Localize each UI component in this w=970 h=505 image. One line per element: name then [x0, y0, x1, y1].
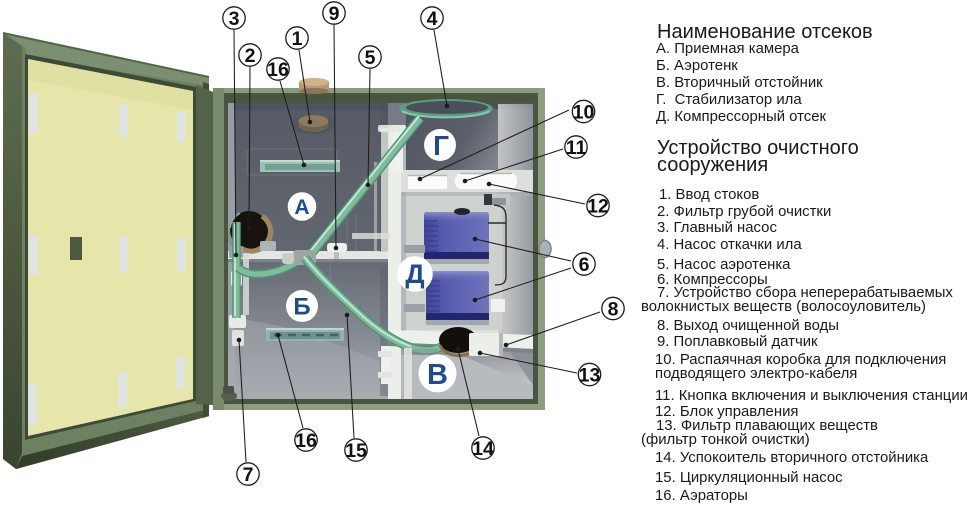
svg-text:7: 7	[243, 464, 254, 486]
svg-text:5: 5	[365, 47, 376, 69]
svg-text:16: 16	[267, 59, 289, 81]
svg-text:10: 10	[573, 102, 595, 124]
svg-text:15: 15	[345, 440, 367, 462]
svg-text:4: 4	[427, 8, 438, 30]
svg-text:Д: Д	[405, 259, 424, 289]
svg-text:3: 3	[229, 8, 240, 30]
svg-text:Г: Г	[433, 130, 449, 161]
svg-text:2: 2	[245, 45, 256, 67]
svg-text:В: В	[427, 359, 448, 391]
svg-text:А: А	[294, 196, 309, 219]
svg-text:11: 11	[566, 137, 587, 159]
svg-text:9: 9	[329, 3, 340, 25]
svg-text:12: 12	[587, 196, 609, 218]
svg-text:1: 1	[292, 28, 303, 50]
svg-text:Б: Б	[293, 294, 310, 321]
svg-text:16: 16	[295, 430, 317, 452]
svg-text:8: 8	[608, 299, 619, 321]
svg-text:14: 14	[472, 438, 494, 460]
svg-text:13: 13	[579, 365, 601, 387]
svg-text:6: 6	[579, 254, 590, 276]
